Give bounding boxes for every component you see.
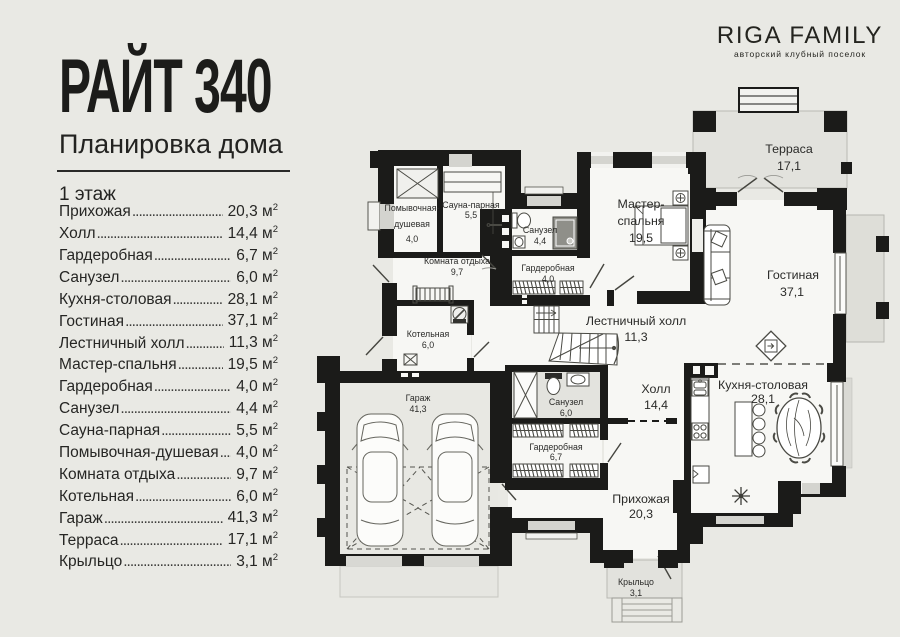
svg-text:4,0: 4,0: [542, 274, 554, 284]
svg-text:19,5: 19,5: [629, 231, 653, 245]
svg-text:6,0: 6,0: [560, 408, 572, 418]
svg-text:Гараж: Гараж: [406, 393, 431, 403]
svg-text:Помывочная-: Помывочная-: [385, 203, 440, 213]
svg-text:душевая: душевая: [394, 219, 430, 229]
svg-text:4,0: 4,0: [406, 234, 418, 244]
svg-text:спальня: спальня: [617, 214, 664, 228]
svg-text:28,1: 28,1: [751, 392, 775, 406]
svg-text:9,7: 9,7: [451, 267, 463, 277]
svg-text:Гардеробная: Гардеробная: [529, 442, 582, 452]
svg-text:Комната отдыха: Комната отдыха: [424, 256, 490, 266]
svg-text:3,1: 3,1: [630, 588, 642, 598]
svg-text:Гардеробная: Гардеробная: [521, 263, 574, 273]
svg-text:5,5: 5,5: [465, 210, 477, 220]
svg-text:6,0: 6,0: [422, 340, 434, 350]
svg-text:Сауна-парная: Сауна-парная: [442, 200, 500, 210]
svg-text:Санузел: Санузел: [523, 225, 557, 235]
svg-text:Гостиная: Гостиная: [767, 268, 819, 282]
svg-text:Прихожая: Прихожая: [612, 492, 669, 506]
svg-text:4,4: 4,4: [534, 236, 546, 246]
svg-text:20,3: 20,3: [629, 507, 653, 521]
svg-text:Кухня-столовая: Кухня-столовая: [718, 378, 808, 392]
svg-text:Санузел: Санузел: [549, 397, 583, 407]
svg-text:Холл: Холл: [641, 382, 670, 396]
svg-text:Крыльцо: Крыльцо: [618, 577, 654, 587]
svg-text:37,1: 37,1: [780, 285, 804, 299]
svg-text:14,4: 14,4: [644, 398, 668, 412]
svg-text:6,7: 6,7: [550, 452, 562, 462]
svg-text:Лестничный холл: Лестничный холл: [586, 314, 686, 328]
svg-text:11,3: 11,3: [624, 330, 647, 344]
svg-text:41,3: 41,3: [409, 404, 426, 414]
svg-text:17,1: 17,1: [777, 159, 801, 173]
svg-text:Котельная: Котельная: [407, 329, 450, 339]
svg-text:Мастер-: Мастер-: [618, 197, 665, 211]
svg-text:Терраса: Терраса: [765, 142, 813, 156]
